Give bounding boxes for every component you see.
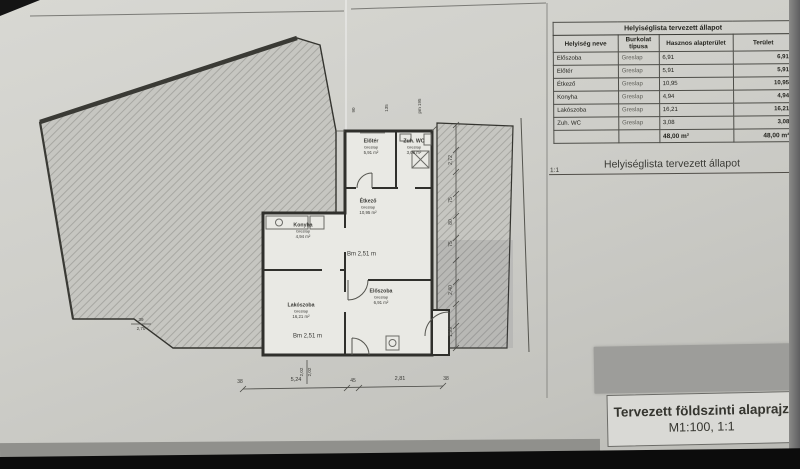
dim-top-3: pm 195 <box>417 98 422 114</box>
ceiling-height-label-lakoszoba: Bm 2,51 m <box>293 332 322 339</box>
cell-area: 6,91 <box>659 51 733 65</box>
dim-bottom-1: 38 <box>237 379 243 385</box>
cell-flooring: Greslap <box>619 117 660 130</box>
room-label-eloszoba: Előszoba Greslap 6,91 m² <box>355 288 407 306</box>
cell-area: 5,91 <box>659 64 733 78</box>
dim-bottom-4: 2,81 <box>395 376 406 382</box>
cell-room-name: Konyha <box>554 91 619 104</box>
room-label-konyha: Konyha Greslap 4,94 m² <box>277 222 329 240</box>
column-header: Burkolat típusa <box>618 35 659 52</box>
column-header: Terület <box>733 34 793 51</box>
dim-bottom-5: 38 <box>443 376 449 382</box>
cell-room-name: Lakószoba <box>554 104 619 117</box>
dim-right-1: 2,72 <box>448 155 454 165</box>
cell-flooring: Greslap <box>618 52 659 65</box>
cell-room-name: Előtér <box>553 65 618 78</box>
dim-top-2: 135 <box>384 104 389 112</box>
cell-total: 5,91 <box>733 64 793 77</box>
room-name: Étkező <box>342 198 394 205</box>
cell-total: 16,21 <box>734 103 794 116</box>
cell-area: 4,94 <box>659 90 733 104</box>
drawing-title-block: Tervezett földszinti alaprajz M1:100, 1:… <box>606 391 796 447</box>
room-list-table: Helyiséglista tervezett állapot Helyiség… <box>553 20 795 144</box>
cell-flooring: Greslap <box>618 65 659 78</box>
caption-scale: 1:1 <box>550 167 559 174</box>
room-name: Zuh. WC <box>388 138 440 145</box>
caption-text: Helyiséglista tervezett állapot <box>604 157 740 170</box>
room-area: 10,95 m² <box>342 210 394 216</box>
dim-right-3: 80 <box>448 219 454 225</box>
column-header: Helyiség neve <box>553 35 618 52</box>
dim-right-2: 75 <box>448 197 454 203</box>
table-total-row: 48,00 m² 48,00 m² <box>554 129 794 144</box>
cell-area: 16,21 <box>659 103 733 117</box>
room-area: 16,21 m² <box>275 314 327 320</box>
dim-right-5: 2,40 <box>448 285 454 295</box>
cell-total: 10,95 <box>733 77 793 90</box>
cell-flooring: Greslap <box>618 91 659 104</box>
side-yard-strip <box>437 118 529 352</box>
room-name: Lakószoba <box>275 302 327 309</box>
drawing-scale: M1:100, 1:1 <box>608 418 795 436</box>
drawing-title: Tervezett földszinti alaprajz <box>608 401 795 420</box>
table-caption: 1:1 Helyiséglista tervezett állapot <box>549 157 795 175</box>
cell-empty <box>554 130 619 143</box>
column-header: Hasznos alapterület <box>659 34 734 52</box>
scan-right-edge <box>789 0 800 469</box>
scanned-floor-plan-sheet: 38 5,24 45 2,81 38 2,72 75 80 75 2,40 1,… <box>0 0 800 469</box>
ceiling-height-label-etkezo: Bm 2,51 m <box>347 250 376 257</box>
dim-bottom-2: 5,24 <box>291 377 302 383</box>
cell-grand-total-area: 48,00 m² <box>659 129 733 143</box>
dim-right-6: 1,99 <box>448 327 454 337</box>
dim-right-4: 75 <box>448 241 454 247</box>
dim-mid-2: 2,02 <box>307 367 312 376</box>
shaded-stamp-block <box>594 343 791 393</box>
cell-flooring: Greslap <box>618 78 659 91</box>
cell-room-name: Zuh. WC <box>554 117 619 130</box>
room-label-lakoszoba: Lakószoba Greslap 16,21 m² <box>275 302 327 320</box>
room-label-etkezo: Étkező Greslap 10,95 m² <box>342 198 394 216</box>
cell-area: 10,95 <box>659 77 733 91</box>
cell-grand-total: 48,00 m² <box>734 129 794 142</box>
cell-room-name: Étkező <box>553 78 618 91</box>
cell-flooring: Greslap <box>618 104 659 117</box>
room-area: 6,91 m² <box>355 300 407 306</box>
room-name: Előszoba <box>355 288 407 295</box>
cell-total: 4,94 <box>734 90 794 103</box>
dim-mid-1: 2,02 <box>299 367 304 376</box>
table-header-row: Helyiség neve Burkolat típusa Hasznos al… <box>553 34 793 53</box>
cell-area: 3,08 <box>659 116 733 130</box>
cell-room-name: Előszoba <box>553 52 618 65</box>
room-label-zuh-wc: Zuh. WC Greslap 3,08 m² <box>388 138 440 156</box>
room-area: 3,08 m² <box>388 150 440 156</box>
cell-total: 3,08 <box>734 116 794 129</box>
dim-top-1: 90 <box>351 107 356 113</box>
dim-left-2: 2,70 <box>137 326 146 331</box>
cell-total: 6,91 <box>733 51 793 64</box>
room-area: 4,94 m² <box>277 234 329 240</box>
dim-left-1: 39 <box>138 317 144 322</box>
cell-empty <box>619 130 660 143</box>
dim-bottom-3: 45 <box>350 378 356 384</box>
room-name: Konyha <box>277 222 329 229</box>
